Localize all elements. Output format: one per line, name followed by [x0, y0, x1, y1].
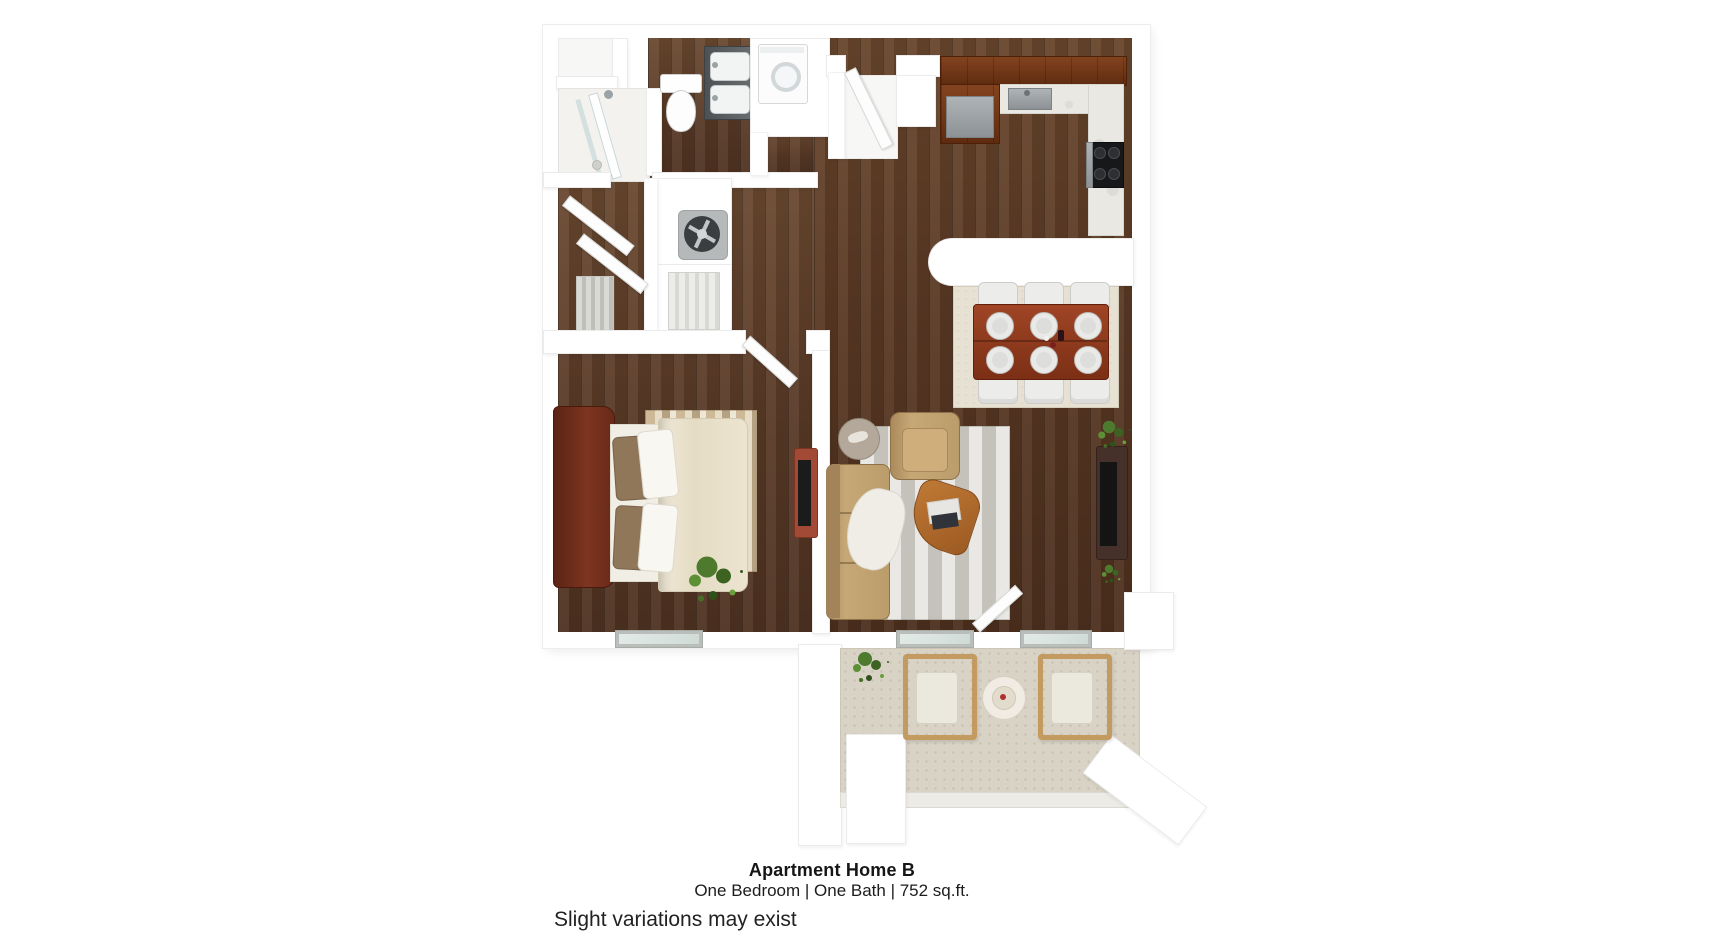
- entry-front-wall: [896, 55, 940, 77]
- plant-fern: [1105, 565, 1113, 573]
- kitchen-half-wall: [928, 238, 1134, 286]
- floor-plan-title: Apartment Home B: [749, 860, 915, 881]
- patio-chair-cushion: [1051, 672, 1093, 724]
- kitchen-faucet-icon: [1024, 90, 1030, 96]
- kitchen-sink: [1008, 88, 1052, 110]
- laundry-side-wall: [750, 132, 768, 176]
- living-room-tv: [1100, 462, 1117, 546]
- toilet-bowl: [666, 90, 696, 132]
- floor-plan-subtitle: One Bedroom | One Bath | 752 sq.ft.: [694, 881, 969, 901]
- dining-plate: [1074, 346, 1102, 374]
- oven-handle: [1086, 142, 1093, 188]
- shower-head-icon: [604, 90, 613, 99]
- cup-icon: [1044, 336, 1049, 341]
- burner-icon: [1094, 168, 1106, 180]
- closet-curtain: [576, 276, 614, 336]
- hall-closet-wall: [644, 178, 658, 336]
- shower-bath-wall: [646, 88, 662, 176]
- bedroom-window: [615, 630, 703, 648]
- bedroom-top-wall: [543, 330, 746, 354]
- window-glass: [900, 634, 970, 644]
- washer-door-icon: [771, 62, 801, 92]
- building-corner-wall: [1124, 592, 1174, 650]
- washer-control-panel: [760, 47, 804, 53]
- living-window: [1020, 630, 1092, 648]
- patio-planter-wall: [846, 734, 906, 844]
- shower-drain-icon: [592, 160, 602, 170]
- window-glass: [1024, 634, 1088, 644]
- dining-plate: [1074, 312, 1102, 340]
- dining-plate: [986, 312, 1014, 340]
- patio-tray-decor: [1000, 694, 1006, 700]
- refrigerator: [946, 96, 994, 138]
- bed-headboard: [553, 406, 615, 588]
- dining-plate: [986, 346, 1014, 374]
- armchair-cushion: [902, 428, 948, 472]
- hall-floor-patch: [766, 132, 814, 174]
- bed-pillow-white: [637, 503, 679, 574]
- linen-closet-door: [668, 272, 720, 330]
- dining-table-seam: [973, 340, 1107, 342]
- plant-fern: [1103, 421, 1116, 434]
- plant-fern: [697, 557, 718, 578]
- disclaimer-text: Slight variations may exist: [554, 908, 797, 932]
- patio-left-wall: [798, 644, 842, 846]
- patio-chair-cushion: [916, 672, 958, 724]
- plant-fern: [858, 652, 872, 666]
- hall-closet-floor: [558, 38, 616, 80]
- bath-hall-wall: [543, 172, 611, 188]
- hvac-fan-hub: [697, 229, 707, 239]
- kitchen-upper-cabinets: [940, 56, 1127, 86]
- entry-side-wall: [828, 72, 845, 159]
- floor-plan-page: Apartment Home B One Bedroom | One Bath …: [0, 0, 1720, 950]
- bedroom-tv: [798, 460, 811, 526]
- dining-plate: [1030, 346, 1058, 374]
- burner-icon: [1094, 147, 1106, 159]
- entry-side-wall: [896, 75, 936, 127]
- sofa-backrest: [826, 464, 840, 618]
- faucet-icon: [712, 62, 718, 68]
- living-window: [896, 630, 974, 648]
- faucet-icon: [712, 95, 718, 101]
- bed-pillow-white: [637, 428, 680, 499]
- burner-icon: [1108, 147, 1120, 159]
- wine-bottle-icon: [1058, 330, 1064, 341]
- burner-icon: [1108, 168, 1120, 180]
- window-glass: [619, 634, 699, 644]
- wine-glass-icon: [1050, 342, 1056, 348]
